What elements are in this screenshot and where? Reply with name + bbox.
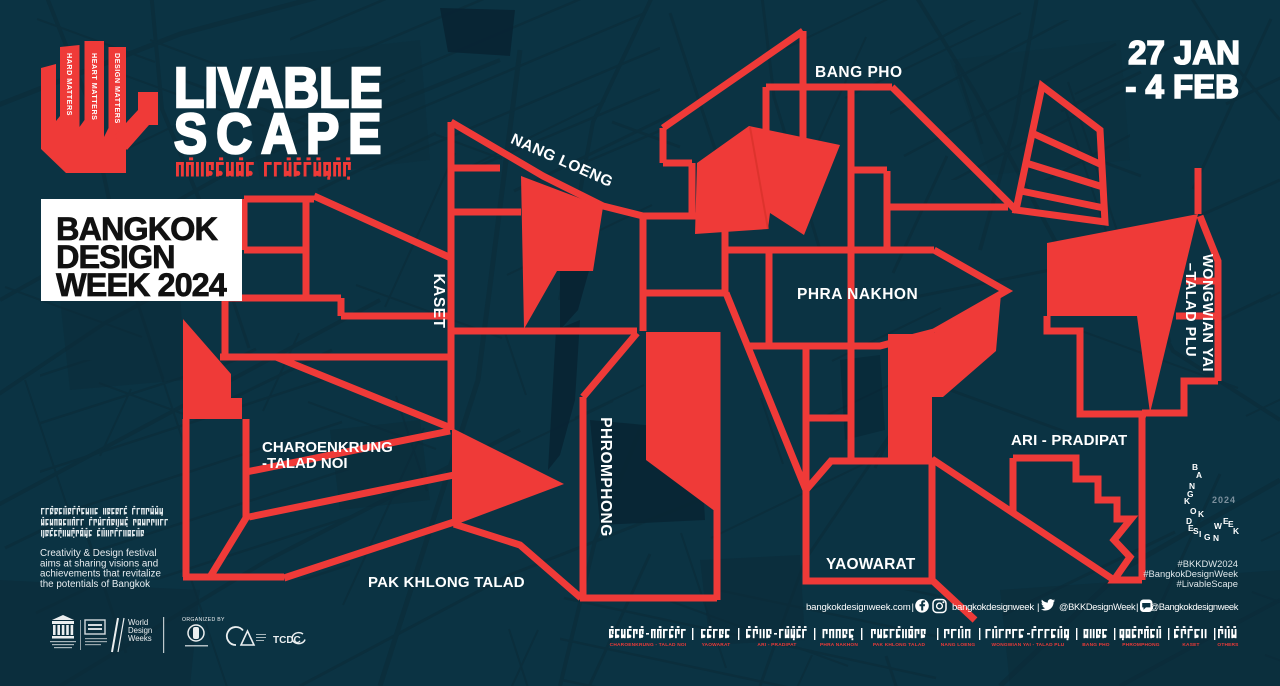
svg-text:bangkokdesignweek: bangkokdesignweek bbox=[952, 602, 1034, 613]
svg-text:-TALAD NOI: -TALAD NOI bbox=[262, 455, 348, 472]
svg-text:OTHERS: OTHERS bbox=[1217, 642, 1239, 648]
svg-text:HARD MATTERS: HARD MATTERS bbox=[65, 53, 74, 116]
svg-text:KASET: KASET bbox=[1182, 642, 1199, 648]
svg-text:bangkokdesignweek.com: bangkokdesignweek.com bbox=[806, 602, 911, 613]
svg-text:O: O bbox=[1190, 506, 1197, 516]
svg-text:WONGWIAN YAI - TALAD PLU: WONGWIAN YAI - TALAD PLU bbox=[992, 642, 1065, 648]
svg-text:TCDC: TCDC bbox=[273, 635, 301, 646]
svg-text:CHAROENKRUNG - TALAD NOI: CHAROENKRUNG - TALAD NOI bbox=[610, 642, 687, 648]
svg-text:- 4 FEB: - 4 FEB bbox=[1125, 68, 1239, 105]
svg-text:PAK KHLONG TALAD: PAK KHLONG TALAD bbox=[368, 574, 525, 591]
svg-text:ORGANIZED BY: ORGANIZED BY bbox=[182, 617, 225, 623]
svg-text:BANG PHO: BANG PHO bbox=[815, 64, 903, 81]
svg-text:PAK KHLONG TALAD: PAK KHLONG TALAD bbox=[873, 642, 926, 648]
svg-text:K: K bbox=[1184, 496, 1190, 506]
svg-text:WONGWIAN YAI: WONGWIAN YAI bbox=[1199, 254, 1215, 372]
svg-text:@BKKDesignWeek: @BKKDesignWeek bbox=[1059, 602, 1136, 612]
svg-text:#LivableScape: #LivableScape bbox=[1176, 578, 1238, 589]
svg-text:K: K bbox=[1198, 509, 1204, 519]
svg-text:CHAROENKRUNG: CHAROENKRUNG bbox=[262, 439, 393, 456]
svg-text:@Bangkokdesignweek: @Bangkokdesignweek bbox=[1150, 601, 1239, 612]
svg-text:HEART MATTERS: HEART MATTERS bbox=[90, 53, 99, 120]
svg-text:A: A bbox=[1196, 470, 1202, 480]
svg-text:ARI - PRADIPAT: ARI - PRADIPAT bbox=[1011, 432, 1127, 449]
svg-text:–TALAD PLU: –TALAD PLU bbox=[1182, 263, 1198, 357]
svg-text:I: I bbox=[1199, 529, 1201, 539]
svg-text:PHRA NAKHON: PHRA NAKHON bbox=[820, 642, 858, 648]
svg-text:BANG PHO: BANG PHO bbox=[1082, 642, 1110, 648]
svg-text:G: G bbox=[1204, 532, 1211, 542]
svg-text:NANG LOENG: NANG LOENG bbox=[941, 642, 976, 648]
svg-text:ARI - PRADIPAT: ARI - PRADIPAT bbox=[757, 642, 796, 648]
svg-text:|: | bbox=[1136, 602, 1139, 613]
svg-text:2024: 2024 bbox=[1212, 495, 1236, 505]
svg-text:PHROMPHONG: PHROMPHONG bbox=[1122, 642, 1160, 648]
svg-text:the potentials of Bangkok: the potentials of Bangkok bbox=[40, 579, 150, 590]
svg-text:YAOWARAT: YAOWARAT bbox=[826, 556, 916, 573]
svg-text:SCAPE: SCAPE bbox=[174, 103, 390, 166]
svg-text:|: | bbox=[1037, 602, 1040, 613]
svg-text:|: | bbox=[912, 602, 915, 613]
svg-text:PHRA NAKHON: PHRA NAKHON bbox=[797, 286, 918, 303]
svg-text:W: W bbox=[1214, 521, 1222, 531]
svg-text:PHROMPHONG: PHROMPHONG bbox=[597, 417, 614, 537]
svg-text:N: N bbox=[1213, 533, 1219, 543]
svg-text:YAOWARAT: YAOWARAT bbox=[702, 642, 731, 648]
svg-text:Weeks: Weeks bbox=[128, 634, 152, 643]
svg-text:27 JAN: 27 JAN bbox=[1128, 34, 1240, 71]
svg-text:K: K bbox=[1233, 526, 1239, 536]
svg-text:DESIGN MATTERS: DESIGN MATTERS bbox=[113, 53, 122, 124]
svg-text:KASET: KASET bbox=[430, 273, 447, 328]
svg-text:WEEK 2024: WEEK 2024 bbox=[56, 267, 227, 303]
